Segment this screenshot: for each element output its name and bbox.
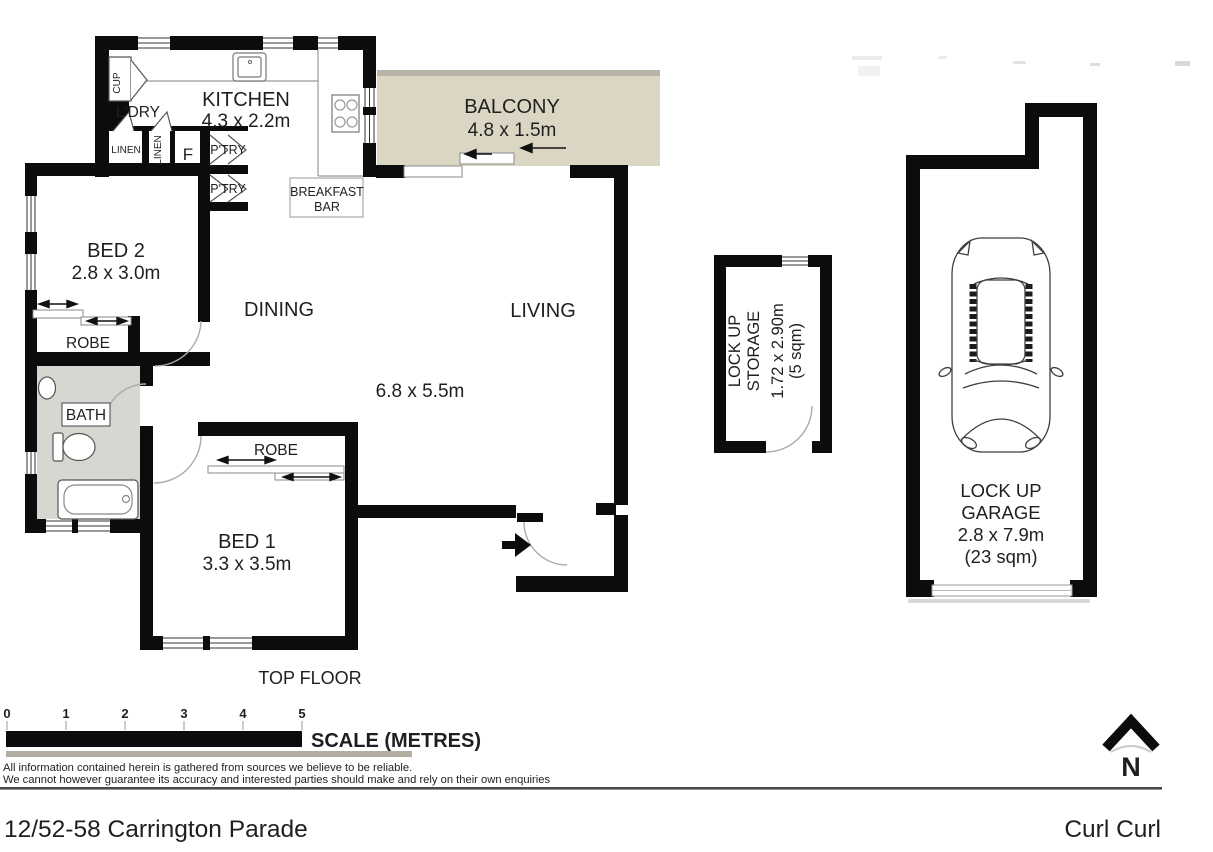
entry-door [524,522,567,565]
door-arcs [104,321,812,565]
window [363,115,376,143]
robe-bed1-label: ROBE [254,442,298,459]
north-label: N [1121,752,1141,782]
bed1-door [154,436,201,483]
storage-name-line1: LOCK UP [726,315,744,387]
window [25,452,37,474]
garage-name-line2: GARAGE [961,502,1040,523]
balcony-label: BALCONY [464,96,560,118]
disclaimer-line2: We cannot however guarantee its accuracy… [3,774,550,786]
garage-dims: 2.8 x 7.9m [958,524,1044,545]
window [46,519,72,533]
scale-number: 5 [298,706,305,721]
balcony-dims: 4.8 x 1.5m [468,120,557,141]
toilet-tank [53,433,63,461]
floor-plan: KITCHEN 4.3 x 2.2m L'DRY BALCONY 4.8 x 1… [0,0,1213,852]
window [363,88,376,107]
dining-label: DINING [244,299,314,321]
north-arrow-icon [1106,721,1156,748]
window [263,36,293,50]
fridge-label: F [183,145,193,164]
storage-area: (5 sqm) [787,323,805,379]
storage-labels: LOCK UP STORAGE 1.72 x 2.90m (5 sqm) [726,303,805,398]
bed1-label: BED 1 [218,531,276,553]
living-dining-dims: 6.8 x 5.5m [376,381,465,402]
cooktop-icon [332,95,359,132]
pantry-b-label: P'TRY [210,182,246,196]
garage-name-line1: LOCK UP [960,480,1041,501]
toilet-icon [63,434,95,461]
breakfast-bar-line1: BREAKFAST [290,185,364,199]
storage-door [766,406,812,452]
balcony-floor [377,70,660,166]
scale-ticks [7,721,302,730]
window [25,196,37,232]
bed2-label: BED 2 [87,240,145,262]
pantry-a-label: P'TRY [210,143,246,157]
scale-number: 2 [121,706,128,721]
car-icon [938,238,1065,452]
window [782,255,808,267]
footer: 12/52-58 Carrington Parade Curl Curl [4,816,1161,843]
window [78,519,110,533]
breakfast-bar-line2: BAR [314,200,340,214]
cup-label: CUP [112,72,123,93]
window [210,636,252,650]
garage-labels: LOCK UP GARAGE 2.8 x 7.9m (23 sqm) [958,480,1044,567]
scale-number: 3 [180,706,187,721]
bed2-dims: 2.8 x 3.0m [72,263,161,284]
window [25,254,37,290]
bed1-dims: 3.3 x 3.5m [203,554,292,575]
bath-label-box: BATH [62,403,110,426]
scale-underline [6,751,412,757]
balcony-railing [377,70,660,76]
scale-number: 1 [62,706,69,721]
living-label: LIVING [510,300,576,322]
garage-area: (23 sqm) [965,546,1038,567]
watermark-remnants [852,56,1190,76]
scale-label: SCALE (METRES) [311,730,481,752]
window [318,36,338,50]
storage-dims: 1.72 x 2.90m [769,303,787,398]
divider-rule [0,787,1162,790]
storage-name-line2: STORAGE [745,311,763,391]
garage-door [908,585,1090,603]
robe-bed2-label: ROBE [66,335,110,352]
scale-bar-rect [6,731,302,747]
cupboard-door-icon [131,60,147,100]
linen-b-label: LINEN [153,135,164,164]
linen-a-label: LINEN [111,145,140,156]
suburb: Curl Curl [1064,816,1161,843]
window [163,636,203,650]
disclaimer-line1: All information contained herein is gath… [3,762,412,774]
floor-plan-page: KITCHEN 4.3 x 2.2m L'DRY BALCONY 4.8 x 1… [0,0,1213,852]
basin-icon [39,377,56,399]
scale-bar: 0 1 2 3 4 5 SCALE (METRES) [3,706,481,757]
scale-number: 4 [239,706,247,721]
kitchen-dims: 4.3 x 2.2m [202,111,291,132]
bath-label: BATH [66,407,106,424]
laundry-label: L'DRY [116,104,160,121]
north-compass: N [1106,721,1156,782]
window [138,36,170,50]
disclaimer: All information contained herein is gath… [3,762,550,786]
address: 12/52-58 Carrington Parade [4,816,308,843]
kitchen-label: KITCHEN [202,89,290,111]
scale-number: 0 [3,706,10,721]
top-floor-label: TOP FLOOR [258,668,361,688]
